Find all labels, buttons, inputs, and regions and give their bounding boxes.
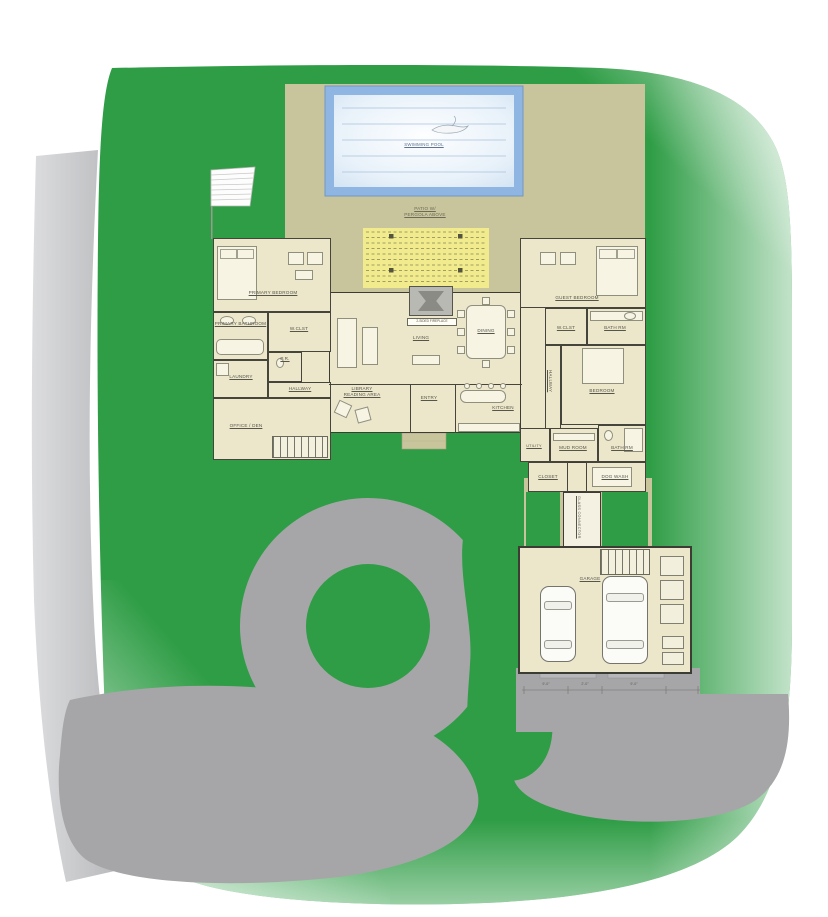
fireplace-note: 2-SIDED FIREPLACE xyxy=(407,318,457,326)
room-wclst-left xyxy=(268,312,331,352)
pergola-post xyxy=(458,234,463,239)
bed-guest xyxy=(596,246,638,296)
side-table xyxy=(295,270,313,280)
dining-chair xyxy=(507,310,515,318)
pergola-post xyxy=(389,268,394,273)
coffee-table xyxy=(412,355,440,365)
label-dining: DINING xyxy=(470,328,502,334)
garage-shelf xyxy=(660,604,684,624)
chair xyxy=(307,252,323,265)
mud-bench xyxy=(553,433,595,441)
fireplace xyxy=(409,286,453,316)
glass-connector xyxy=(563,492,601,548)
dining-chair xyxy=(507,346,515,354)
connector-label: GLASS CONNECTOR xyxy=(577,496,581,546)
stair-garage xyxy=(600,549,650,575)
wall-entry-kitchen xyxy=(455,384,456,433)
label-kitchen: KITCHEN xyxy=(486,405,520,411)
label-bath-upper: BATH RM xyxy=(594,325,636,331)
car-left xyxy=(540,586,576,662)
label-hallway-east: HALLWAY xyxy=(548,370,553,416)
dining-chair xyxy=(482,297,490,305)
label-living: LIVING xyxy=(404,335,438,341)
swimming-pool xyxy=(325,86,523,196)
garage-dim-1: 9'-0" xyxy=(534,682,558,686)
sink xyxy=(624,312,636,320)
pillow xyxy=(220,249,237,259)
garage-bin xyxy=(662,652,684,665)
dining-chair xyxy=(457,346,465,354)
site-plan-canvas: SWIMMING POOL PATIO W/ PERGOLA ABOVE PRI… xyxy=(0,0,828,917)
bed-bedroom xyxy=(582,348,624,384)
pergola-post xyxy=(389,234,394,239)
label-bath-lower: BATH RM xyxy=(600,445,644,451)
fireplace-flue xyxy=(418,291,444,311)
garage-shelf xyxy=(660,556,684,576)
windshield xyxy=(606,593,644,602)
stool xyxy=(500,383,506,389)
dining-chair xyxy=(457,328,465,336)
rear-window xyxy=(544,640,572,649)
pillow xyxy=(237,249,254,259)
pillow xyxy=(599,249,617,259)
toilet xyxy=(604,430,613,441)
label-dog-wash: DOG WASH xyxy=(590,474,640,480)
label-closet: CLOSET xyxy=(531,474,565,480)
garage-bin xyxy=(662,636,684,649)
pillow xyxy=(617,249,635,259)
label-office-den: OFFICE / DEN xyxy=(216,423,276,429)
dining-chair xyxy=(457,310,465,318)
connector-lawn-west xyxy=(526,492,560,546)
label-pr: P.R. xyxy=(272,356,298,362)
kitchen-counter xyxy=(458,423,520,432)
bathtub xyxy=(216,339,264,355)
chair xyxy=(288,252,304,265)
stair-office xyxy=(272,436,328,458)
pergola-post xyxy=(458,268,463,273)
wall-library-entry xyxy=(410,384,411,433)
chair xyxy=(540,252,556,265)
stool xyxy=(476,383,482,389)
label-library: LIBRARY READING AREA xyxy=(342,386,382,398)
label-garage: GARAGE xyxy=(568,576,612,582)
pool-label: SWIMMING POOL xyxy=(384,142,464,148)
dining-chair xyxy=(507,328,515,336)
kitchen-island xyxy=(460,390,506,403)
label-entry: ENTRY xyxy=(414,395,444,401)
label-wclst-right: W.CLST xyxy=(547,325,585,331)
label-bedroom: BEDROOM xyxy=(582,388,622,394)
loop-island xyxy=(306,564,430,688)
dining-chair xyxy=(482,360,490,368)
rear-window xyxy=(606,640,644,649)
garage-dim-2: 2'-0" xyxy=(573,682,597,686)
site-drawing xyxy=(0,0,828,917)
label-utility: UTILITY xyxy=(518,444,550,449)
windshield xyxy=(544,601,572,610)
label-hallway-west: HALLWAY xyxy=(279,386,321,392)
label-wclst-left: W.CLST xyxy=(277,326,321,332)
label-guest-bedroom: GUEST BEDROOM xyxy=(534,295,620,301)
sofa xyxy=(362,327,378,365)
connector-lawn-east xyxy=(602,492,648,546)
chair xyxy=(560,252,576,265)
label-primary-bedroom: PRIMARY BEDROOM xyxy=(228,290,318,296)
stool xyxy=(488,383,494,389)
garage-dim-3: 9'-0" xyxy=(622,682,646,686)
label-primary-bathroom: PRIMARY BATHROOM xyxy=(214,321,267,327)
sofa xyxy=(337,318,357,368)
patio-label: PATIO W/ PERGOLA ABOVE xyxy=(402,206,448,218)
car-right xyxy=(602,576,648,664)
label-mud-room: MUD ROOM xyxy=(551,445,595,451)
label-laundry: LAUNDRY xyxy=(221,374,261,380)
pergola xyxy=(363,228,489,288)
stool xyxy=(464,383,470,389)
garage-shelf xyxy=(660,580,684,600)
